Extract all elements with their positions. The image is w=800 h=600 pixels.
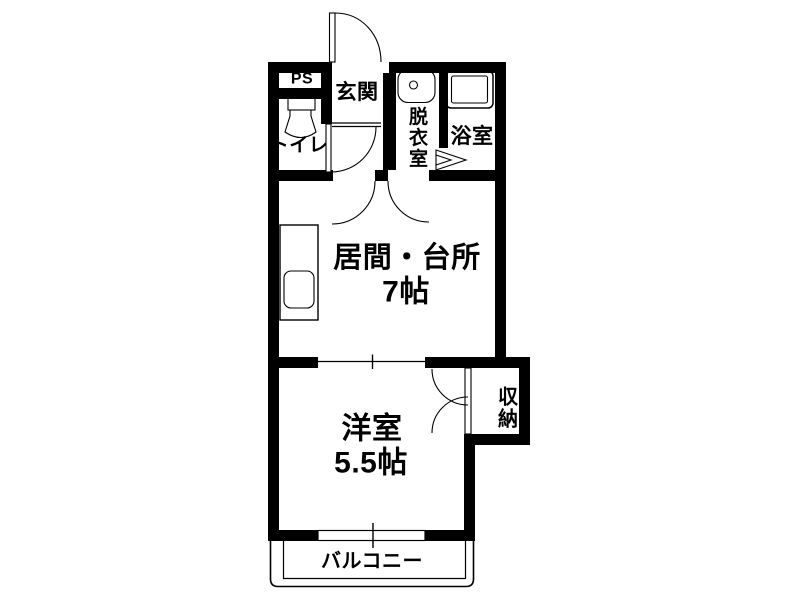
entrance-door-leaf [330,13,336,62]
balcony-window [318,531,425,541]
wash-basin-drain [410,81,418,89]
toilet-icon [285,96,316,138]
wall-toilet-hall [321,62,332,124]
room-label-toilet: トイレ [270,136,329,156]
wall-entryzone-stub [375,170,388,181]
hall-ldk-door-swing-arc [332,181,375,224]
room-label-living-kitchen: 居間・台所 [333,243,481,273]
room-size-western-room: 5.5帖 [334,447,408,479]
room-label-balcony: バルコニー [321,552,423,573]
wash-basin-icon [398,70,435,103]
bathtub-icon [446,71,493,108]
room-label-ps: PS [291,72,313,89]
room-label-western-room: 洋室 [342,413,403,445]
wall-entryzone-bottom-left [268,170,333,181]
toilet-bowl [285,110,316,138]
wall-bottom-left [268,530,318,541]
kitchen-counter-sink-icon [280,225,318,320]
room-size-living-kitchen: 7帖 [382,276,430,308]
wall-right [495,62,506,368]
wall-ldk-western-left [268,357,318,368]
dressing-ldk-door-swing-arc [388,181,429,222]
toilet-door-swing-arc [331,127,376,172]
wall-closet-right [519,357,530,445]
room-label-entrance: 玄関 [336,82,379,104]
room-label-bathroom: 浴室 [451,126,494,148]
room-label-closet: 収納 [495,386,516,430]
closet-door-top-swing-arc [432,369,468,405]
floor-plan: PS 玄関 脱衣室 浴室 トイレ 居間・台所 7帖 洋室 5.5帖 収納 バルコ… [0,0,800,600]
wall-left [268,62,279,541]
wall-ldk-western-right [425,357,530,368]
wall-entryzone-bottom-right [429,170,506,181]
wall-western-right [464,434,475,541]
wall-hall-dressing [383,73,396,170]
bathtub-inner [452,76,488,103]
wall-bottom-right [425,530,475,541]
entrance-door-swing-arc [335,13,381,62]
closet-door-bottom-swing-arc [432,397,468,433]
wash-basin-body [398,70,435,103]
room-label-dressing-room: 脱衣室 [406,107,426,170]
closet-door-leaves [465,368,471,434]
openings [318,123,425,548]
